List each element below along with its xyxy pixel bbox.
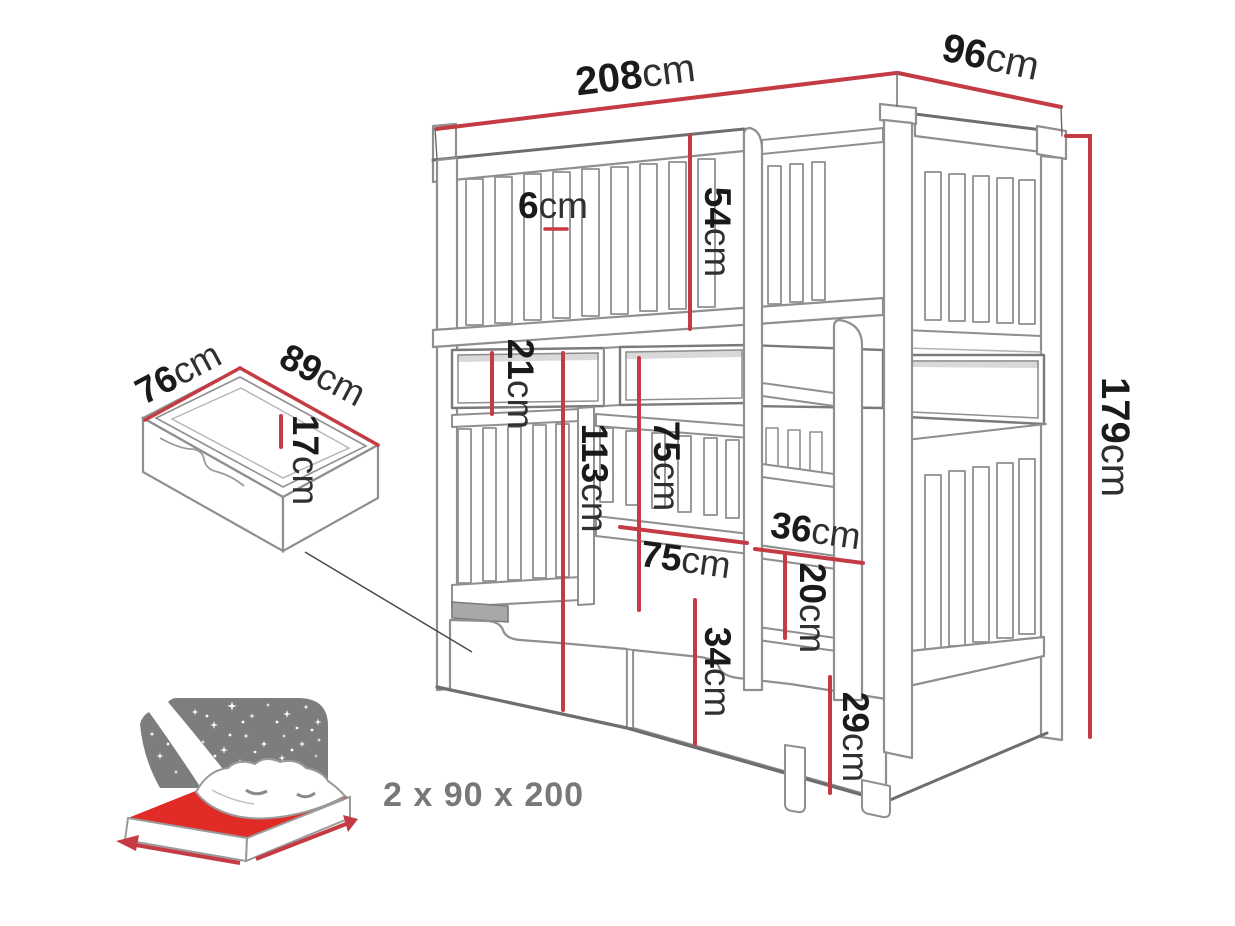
dim-line-height (1066, 136, 1090, 737)
dim-label-entry-height: 75cm (646, 421, 687, 511)
dim-line-depth (898, 73, 1061, 107)
dim-label-lower-guard-top: 113cm (574, 423, 615, 532)
storage-drawer-drawing (143, 368, 472, 652)
diagram-canvas: 208cm 96cm 179cm 54cm 6cm 21cm 113cm 75c… (0, 0, 1235, 926)
bed-side-panel (890, 114, 1066, 800)
dim-label-rung-spacing: 20cm (792, 563, 833, 653)
dim-label-drawer-height: 17cm (285, 415, 326, 505)
bed-corner-post (880, 104, 916, 758)
dim-label-bunk-gap: 21cm (500, 339, 541, 429)
mattress-size-label: 2 x 90 x 200 (383, 776, 584, 814)
mattress-size-icon (116, 698, 358, 863)
dim-label-drawer-front: 34cm (697, 627, 738, 717)
dim-label-slat-gap: 6cm (518, 185, 588, 226)
dim-label-width: 208cm (573, 46, 698, 104)
diagram-svg: 208cm 96cm 179cm 54cm 6cm 21cm 113cm 75c… (0, 0, 1235, 926)
bed-drawer-1 (450, 620, 627, 728)
dim-label-upper-guard: 54cm (697, 187, 738, 277)
dim-label-base-height: 29cm (835, 692, 876, 782)
dim-label-height: 179cm (1093, 377, 1137, 497)
mattress-drawing (116, 759, 358, 863)
dim-label-depth: 96cm (938, 26, 1043, 89)
